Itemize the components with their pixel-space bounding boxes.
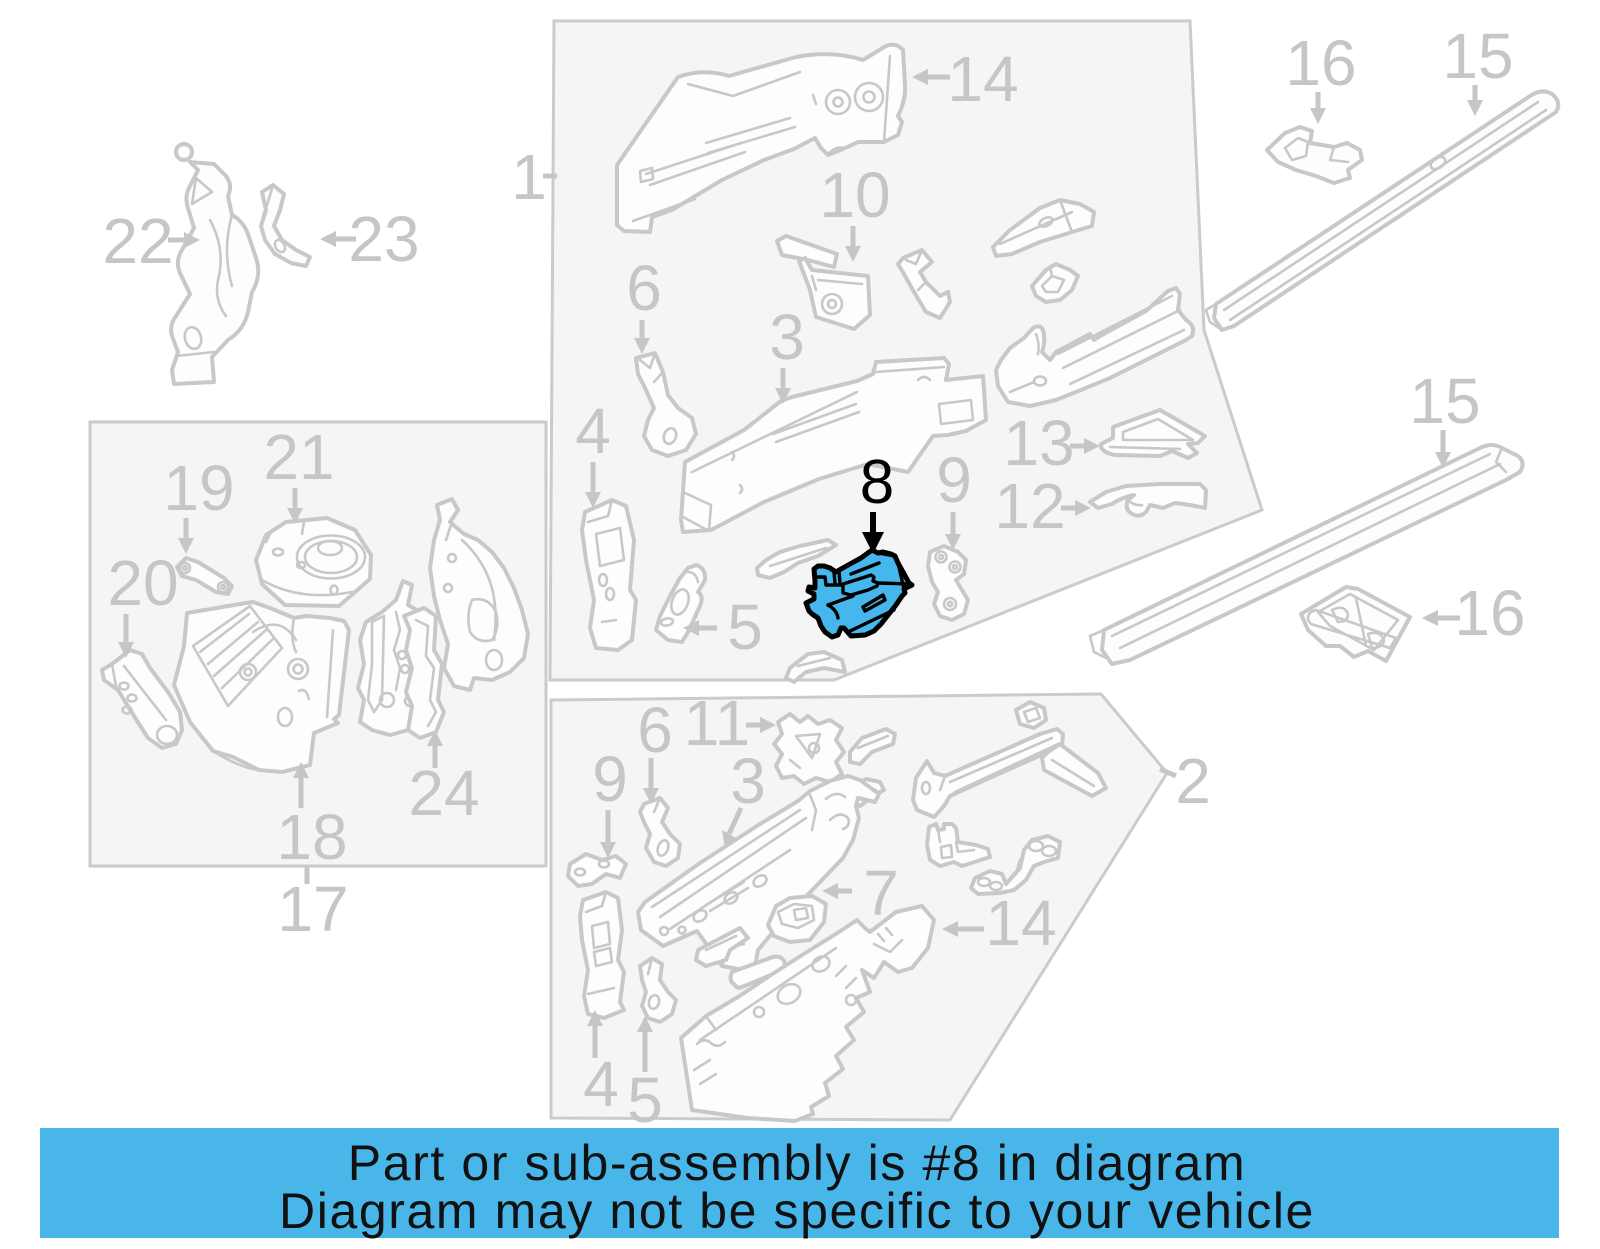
svg-text:15: 15 — [1409, 365, 1480, 437]
svg-text:22: 22 — [102, 205, 173, 277]
svg-text:24: 24 — [408, 757, 479, 829]
svg-text:4: 4 — [583, 1048, 619, 1120]
svg-text:5: 5 — [627, 1064, 663, 1136]
svg-text:3: 3 — [730, 745, 766, 817]
svg-text:5: 5 — [727, 591, 763, 663]
svg-text:9: 9 — [936, 444, 972, 516]
svg-text:13: 13 — [1003, 407, 1074, 479]
svg-text:23: 23 — [348, 203, 419, 275]
svg-text:12: 12 — [994, 470, 1065, 542]
svg-text:15: 15 — [1442, 20, 1513, 92]
svg-text:21: 21 — [263, 421, 334, 493]
svg-text:6: 6 — [626, 252, 662, 324]
svg-text:17: 17 — [277, 873, 348, 945]
svg-text:7: 7 — [863, 857, 899, 929]
svg-text:14: 14 — [985, 887, 1056, 959]
svg-text:1: 1 — [511, 141, 547, 213]
svg-text:16: 16 — [1285, 27, 1356, 99]
svg-text:9: 9 — [592, 743, 628, 815]
svg-text:8: 8 — [860, 448, 894, 517]
svg-text:16: 16 — [1454, 577, 1525, 649]
svg-text:18: 18 — [276, 801, 347, 873]
svg-text:6: 6 — [637, 694, 673, 766]
svg-text:4: 4 — [575, 395, 611, 467]
svg-text:14: 14 — [947, 43, 1018, 115]
svg-text:19: 19 — [163, 452, 234, 524]
svg-text:Diagram may not be specific to: Diagram may not be specific to your vehi… — [279, 1183, 1315, 1239]
svg-text:20: 20 — [107, 547, 178, 619]
svg-text:10: 10 — [819, 159, 890, 231]
svg-text:3: 3 — [769, 301, 805, 373]
svg-text:2: 2 — [1175, 745, 1211, 817]
